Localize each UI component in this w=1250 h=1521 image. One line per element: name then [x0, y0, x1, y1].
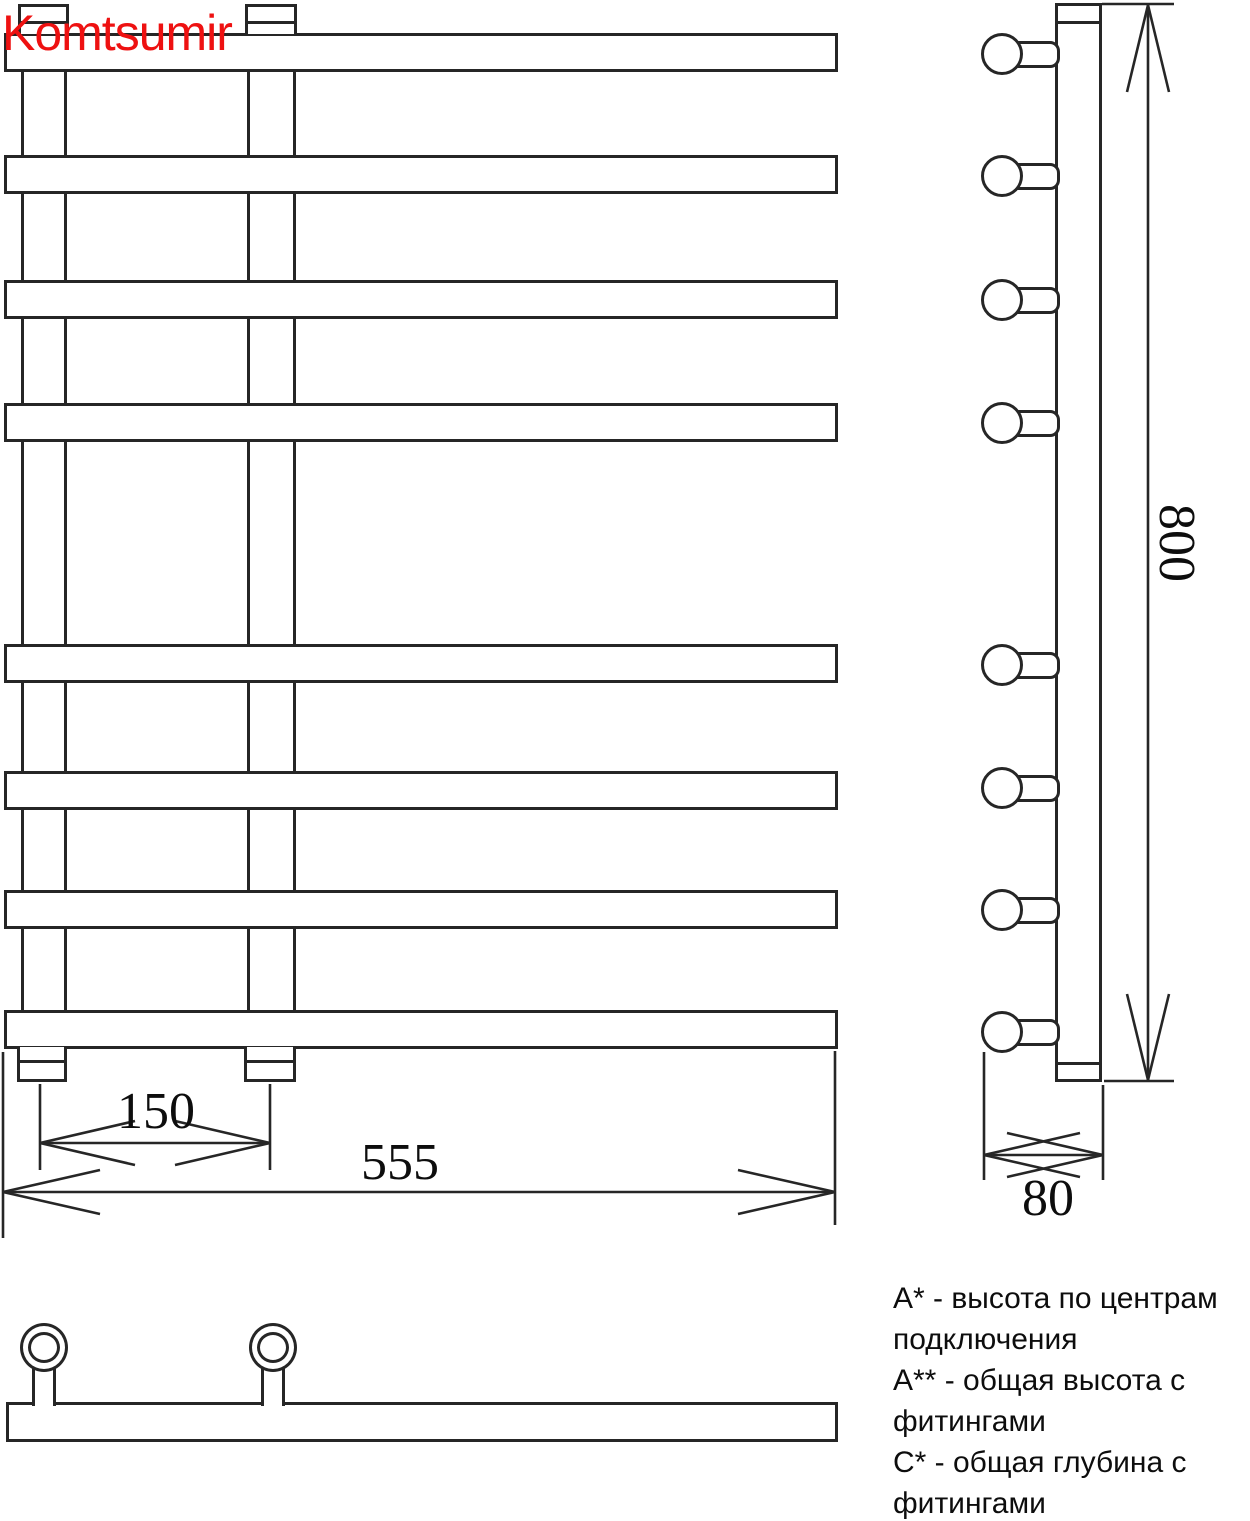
dim-label-80: 80	[988, 1176, 1108, 1222]
post-cap-bottom-left	[17, 1047, 67, 1082]
rail-bar-4	[4, 403, 838, 442]
plan-fitting-stem	[261, 1368, 285, 1406]
connector-ball	[981, 889, 1023, 931]
dim-label-150: 150	[96, 1089, 216, 1135]
rail-bar-8	[4, 1010, 838, 1049]
rail-bar-3	[4, 280, 838, 319]
cap-divider	[246, 1060, 294, 1063]
rail-bar-6	[4, 771, 838, 810]
connector-ball	[981, 402, 1023, 444]
towel-rail-drawing: Komtsumir	[0, 0, 1250, 1521]
side-post-bottom-divider	[1058, 1062, 1099, 1065]
legend-line: А** - общая высота с	[893, 1360, 1250, 1401]
legend-line: фитингами	[893, 1483, 1250, 1521]
side-post	[1055, 3, 1102, 1082]
legend: А* - высота по центрам подключения А** -…	[893, 1278, 1250, 1521]
dim-label-555: 555	[340, 1140, 460, 1186]
connector-ball	[981, 155, 1023, 197]
legend-line: А* - высота по центрам	[893, 1278, 1250, 1319]
connector-ball	[981, 33, 1023, 75]
cap-divider	[19, 1060, 65, 1063]
plan-rail-bar	[6, 1402, 838, 1442]
post-cap-top-right	[245, 4, 297, 34]
rail-bar-2	[4, 155, 838, 194]
plan-fitting-inner	[257, 1332, 289, 1363]
connector-ball	[981, 644, 1023, 686]
post-cap-bottom-right	[244, 1047, 296, 1082]
dim-label-800: 800	[1153, 483, 1199, 603]
rail-bar-7	[4, 890, 838, 929]
plan-fitting-stem	[32, 1368, 56, 1406]
connector-ball	[981, 279, 1023, 321]
brand-watermark: Komtsumir	[2, 4, 232, 62]
cap-divider	[247, 21, 295, 24]
side-post-top-divider	[1058, 21, 1099, 24]
legend-line: фитингами	[893, 1401, 1250, 1442]
legend-line: С* - общая глубина с	[893, 1442, 1250, 1483]
rail-bar-5	[4, 644, 838, 683]
connector-ball	[981, 767, 1023, 809]
connector-ball	[981, 1011, 1023, 1053]
plan-fitting-inner	[28, 1332, 60, 1363]
legend-line: подключения	[893, 1319, 1250, 1360]
